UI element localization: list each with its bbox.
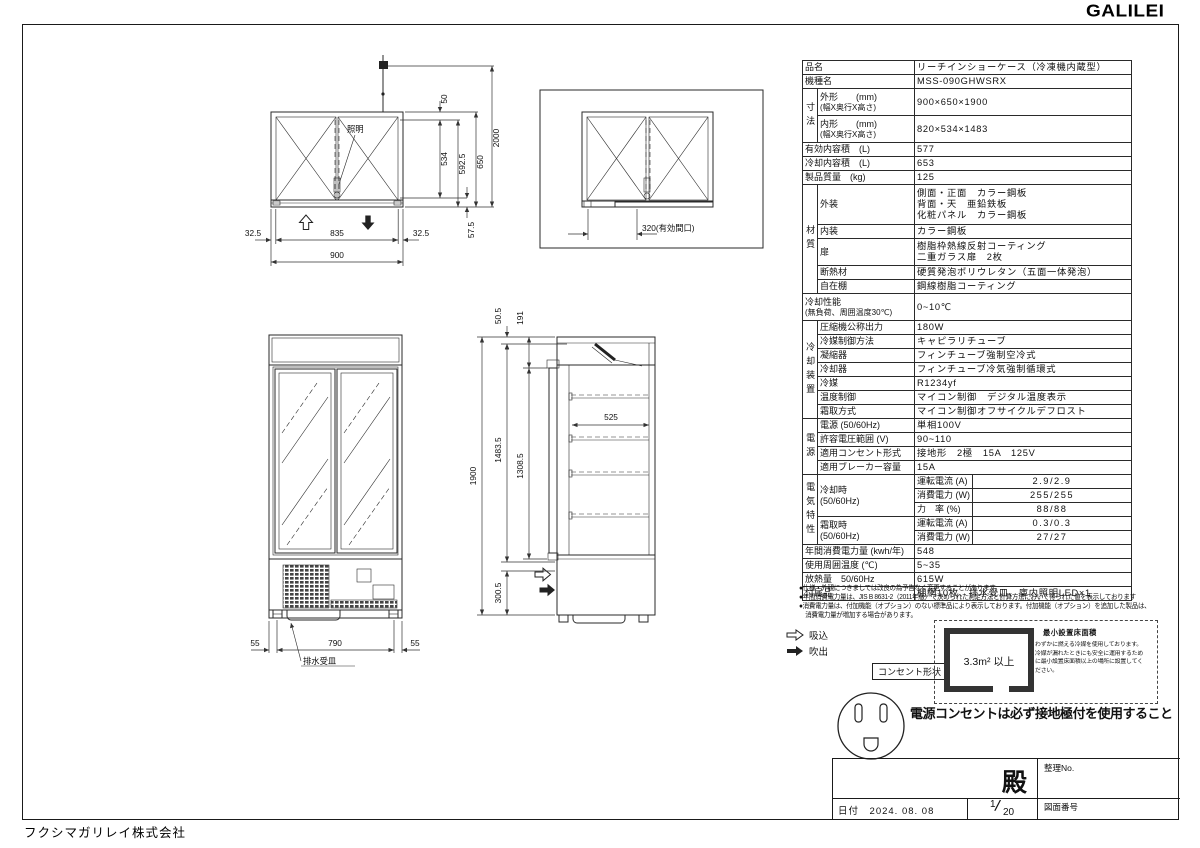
refrigerant-control-value: キャピラリチューブ — [915, 335, 1132, 349]
dim-32-5-left: 32.5 — [245, 228, 262, 238]
defrost-mode-label: 霜取時(50/60Hz) — [818, 517, 915, 545]
dim-55-right: 55 — [410, 638, 420, 648]
suction-arrow-icon — [300, 215, 313, 230]
plan-dimensions: 2000 650 592.5 50 534 57.5 32.5 — [245, 66, 501, 266]
defrost-label: 霜取方式 — [818, 405, 915, 419]
dimension-group-label: 寸法 — [803, 89, 818, 143]
power-source-value: 単相100V — [915, 419, 1132, 433]
ambient-temp-label: 使用周囲温度 (℃) — [803, 559, 915, 573]
dim-534: 534 — [439, 152, 449, 166]
front-cabinet — [269, 335, 402, 620]
dim-191: 191 — [515, 311, 525, 325]
def-power-label: 消費電力 (W) — [915, 531, 973, 545]
cooler-value: フィンチューブ冷気強制循環式 — [915, 363, 1132, 377]
def-power-value: 27/27 — [973, 531, 1132, 545]
side-airflow-arrows — [535, 568, 555, 596]
suction-label: 吸込 — [809, 628, 828, 642]
refrigerant-label: 冷媒 — [818, 377, 915, 391]
refrigerant-control-label: 冷媒制御方法 — [818, 335, 915, 349]
dim-320-opening: 320(有効間口) — [642, 223, 695, 233]
dim-32-5-right: 32.5 — [413, 228, 430, 238]
cooling-volume-label: 冷却内容積 (L) — [803, 157, 915, 171]
condenser-label: 凝縮器 — [818, 349, 915, 363]
effective-volume-label: 有効内容積 (L) — [803, 143, 915, 157]
cool-power-value: 255/255 — [973, 489, 1132, 503]
voltage-range-label: 許容電圧範囲 (V) — [818, 433, 915, 447]
dim-1483-5: 1483.5 — [493, 437, 503, 463]
dim-55-left: 55 — [250, 638, 260, 648]
outlet-type-label: 適用コンセント形式 — [818, 447, 915, 461]
cooling-mode-label: 冷却時(50/60Hz) — [818, 475, 915, 517]
drawing-sheet: GALILEI フクシマガリレイ株式会社 — [0, 0, 1200, 848]
material-group-label: 材質 — [803, 185, 818, 294]
side-view-drawing: 1900 50.5 191 1483.5 1308.5 300.5 525 — [435, 298, 725, 648]
sheet-number-cell: 1 / 20 — [968, 799, 1038, 820]
recipient-cell: 殿 — [833, 759, 1038, 798]
plan-power-cord — [379, 55, 388, 112]
interior-label: 内装 — [818, 225, 915, 239]
ambient-temp-value: 5~35 — [915, 559, 1132, 573]
cooling-perf-label: 冷却性能(無負荷、周囲温度30℃) — [803, 294, 915, 321]
dim-835: 835 — [330, 228, 344, 238]
insulation-label: 断熱材 — [818, 266, 915, 280]
plan-cabinet — [271, 112, 403, 207]
blowout-arrow-icon — [540, 584, 556, 597]
open-dimension: 320(有効間口) — [568, 209, 695, 240]
power-plug-icon — [834, 688, 910, 764]
side-dimensions: 1900 50.5 191 1483.5 1308.5 300.5 525 — [468, 308, 649, 615]
dim-300-5: 300.5 — [493, 582, 503, 603]
inner-dim-label: 内形 (mm)(幅X奥行X高さ) — [818, 116, 915, 143]
def-current-value: 0.3/0.3 — [973, 517, 1132, 531]
breaker-value: 15A — [915, 461, 1132, 475]
cooling-perf-value: 0~10℃ — [915, 294, 1132, 321]
outer-dim-value: 900×650×1900 — [915, 89, 1132, 116]
power-group-label: 電源 — [803, 419, 818, 475]
room-outline-icon: 3.3m² 以上 — [943, 627, 1035, 695]
note-line: ●仕様・外観につきましては改良の為予告なく変更することがあります。 — [799, 584, 1171, 593]
shelf-label: 自在棚 — [818, 280, 915, 294]
dim-525: 525 — [604, 412, 618, 422]
suction-legend: 吸込 — [786, 627, 828, 643]
refrigerant-value: R1234yf — [915, 377, 1132, 391]
door-value: 樹脂枠熱線反射コーティング二重ガラス扉 2枚 — [915, 239, 1132, 266]
open-door-view-drawing: 320(有効間口) — [530, 82, 775, 262]
weight-value: 125 — [915, 171, 1132, 185]
plan-light-label: 照明 — [347, 124, 364, 134]
drawing-no-cell: 図面番号 — [1038, 799, 1180, 820]
elec-group-label: 電気特性 — [803, 475, 818, 545]
weight-label: 製品質量 (kg) — [803, 171, 915, 185]
suction-arrow-icon — [535, 568, 551, 581]
plan-view-drawing: 照明 2000 650 592.5 50 534 — [225, 42, 525, 292]
door-label: 扉 — [818, 239, 915, 266]
title-block: 殿 整理No. 日付 2024. 08. 08 1 / 20 図面番号 — [832, 758, 1180, 820]
dim-790: 790 — [328, 638, 342, 648]
condenser-value: フィンチューブ強制空冷式 — [915, 349, 1132, 363]
side-cabinet — [547, 337, 655, 623]
blowout-arrow-icon — [786, 645, 804, 657]
airflow-legend: 吸込 吹出 — [786, 627, 828, 659]
dim-650: 650 — [475, 155, 485, 169]
effective-volume-value: 577 — [915, 143, 1132, 157]
cooling-volume-value: 653 — [915, 157, 1132, 171]
exterior-value: 側面・正面 カラー鋼板背面・天 亜鉛鉄板化粧パネル カラー鋼板 — [915, 185, 1132, 225]
min-area-value: 3.3m² 以上 — [964, 656, 1015, 668]
cool-pf-value: 88/88 — [973, 503, 1132, 517]
date-cell: 日付 2024. 08. 08 — [833, 799, 968, 820]
blowout-arrow-icon — [362, 216, 375, 231]
dim-900: 900 — [330, 250, 344, 260]
model-label: 機種名 — [803, 75, 915, 89]
blowout-legend: 吹出 — [786, 643, 828, 659]
outer-dim-label: 外形 (mm)(幅X奥行X高さ) — [818, 89, 915, 116]
temp-control-value: マイコン制御 デジタル温度表示 — [915, 391, 1132, 405]
cool-current-value: 2.9/2.9 — [973, 475, 1132, 489]
ref-no-cell: 整理No. — [1038, 759, 1180, 798]
blowout-label: 吹出 — [809, 644, 828, 658]
product-value: リーチインショーケース（冷凍機内蔵型） — [915, 61, 1132, 75]
interior-value: カラー鋼板 — [915, 225, 1132, 239]
compressor-label: 圧縮機公称出力 — [818, 321, 915, 335]
note-line: 消費電力量が増加する場合があります。 — [799, 611, 1171, 620]
voltage-range-value: 90~110 — [915, 433, 1132, 447]
dim-57-5: 57.5 — [466, 222, 476, 239]
note-line: ●消費電力量は、付加機能（オプション）のない標準品により表示しております。付加機… — [799, 602, 1171, 611]
dim-50: 50 — [439, 94, 449, 104]
defrost-value: マイコン制御オフサイクルデフロスト — [915, 405, 1132, 419]
breaker-label: 適用ブレーカー容量 — [818, 461, 915, 475]
power-source-label: 電源 (50/60Hz) — [818, 419, 915, 433]
dim-592-5: 592.5 — [457, 153, 467, 174]
spec-table: 品名 リーチインショーケース（冷凍機内蔵型） 機種名 MSS-090GHWSRX… — [802, 60, 1132, 601]
drain-pan-label: 排水受皿 — [303, 656, 336, 666]
cooling-group-label: 冷却装置 — [803, 321, 818, 419]
open-cabinet — [582, 112, 713, 207]
sheet-total: 20 — [1003, 807, 1014, 818]
company-name: フクシマガリレイ株式会社 — [24, 822, 186, 841]
cool-power-label: 消費電力 (W) — [915, 489, 973, 503]
dim-50-5: 50.5 — [493, 308, 503, 325]
insulation-value: 硬質発泡ポリウレタン（五面一体発泡） — [915, 266, 1132, 280]
note-line: ●年間消費電力量は、JIS B 8631-2（2011年版）で決められた測定方法… — [799, 593, 1171, 602]
product-label: 品名 — [803, 61, 915, 75]
inner-dim-value: 820×534×1483 — [915, 116, 1132, 143]
annual-energy-label: 年間消費電力量 (kwh/年) — [803, 545, 915, 559]
front-dimensions: 55 790 55 — [250, 620, 420, 653]
min-install-area-box: 3.3m² 以上 最小設置床面積 わずかに燃える冷媒を使用しております。 冷媒が… — [934, 620, 1158, 704]
compressor-value: 180W — [915, 321, 1132, 335]
galilei-logo: GALILEI — [1086, 2, 1164, 22]
annual-energy-value: 548 — [915, 545, 1132, 559]
temp-control-label: 温度制御 — [818, 391, 915, 405]
cool-pf-label: 力 率 (%) — [915, 503, 973, 517]
def-current-label: 運転電流 (A) — [915, 517, 973, 531]
plan-light-callout: 照明 — [339, 124, 364, 184]
model-value: MSS-090GHWSRX — [915, 75, 1132, 89]
grounding-warning-text: 電源コンセントは必ず接地極付を使用すること — [910, 703, 1188, 722]
min-area-description: わずかに燃える冷媒を使用しております。 冷媒が漏れたときにも安全に運用するため … — [1035, 641, 1153, 675]
dim-2000: 2000 — [491, 128, 501, 147]
notes-block: ●仕様・外観につきましては改良の為予告なく変更することがあります。 ●年間消費電… — [799, 584, 1171, 620]
exterior-label: 外装 — [818, 185, 915, 225]
dim-1308-5: 1308.5 — [515, 453, 525, 479]
drain-callout: 排水受皿 — [290, 623, 355, 666]
dim-1900: 1900 — [468, 466, 478, 485]
spec-table-container: 品名 リーチインショーケース（冷凍機内蔵型） 機種名 MSS-090GHWSRX… — [802, 60, 1132, 601]
suction-arrow-icon — [786, 629, 804, 641]
cooler-label: 冷却器 — [818, 363, 915, 377]
shelf-value: 鋼線樹脂コーティング — [915, 280, 1132, 294]
honorific: 殿 — [1002, 771, 1027, 796]
outlet-type-value: 接地形 2極 15A 125V — [915, 447, 1132, 461]
min-area-title: 最小設置床面積 — [1043, 628, 1097, 638]
cool-current-label: 運転電流 (A) — [915, 475, 973, 489]
